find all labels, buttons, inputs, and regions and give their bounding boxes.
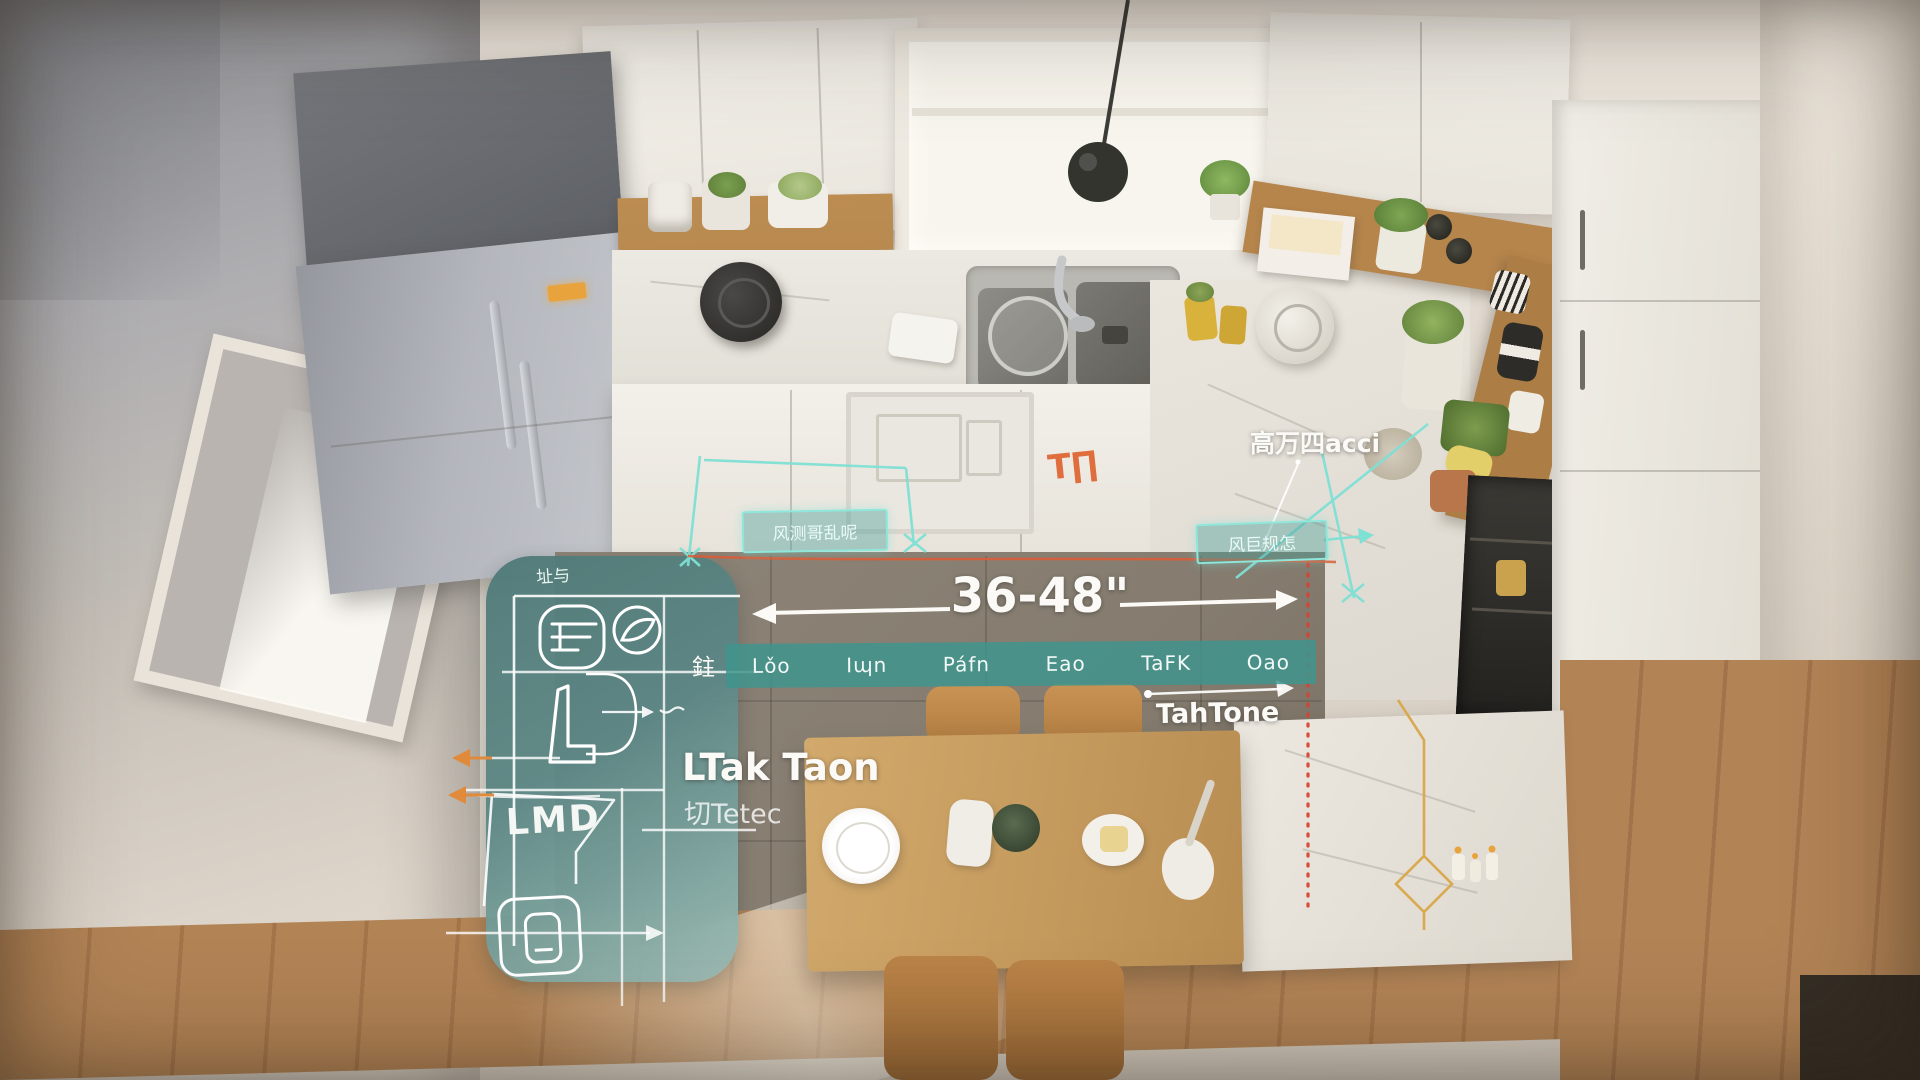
counter-mark: T∏ — [1046, 443, 1100, 488]
orange-arrowhead-1 — [452, 749, 470, 767]
outlet-icon — [498, 896, 582, 976]
lmd-label: LMD — [505, 798, 602, 844]
l-shape-icon — [550, 686, 594, 762]
panel-small-arrowhead — [642, 706, 654, 718]
callout-box-left-text: 风测哥乱呢 — [772, 518, 857, 544]
ltak-title: LTak Taon — [682, 746, 880, 789]
kitchen-render: 36-48" Lǒo Iɰn Páfn Eao TaFK Oao 鉒 风测哥乱呢… — [0, 0, 1920, 1080]
tahtone-label: TahTone — [1156, 697, 1280, 730]
dimension-bar: Lǒo Iɰn Páfn Eao TaFK Oao — [726, 640, 1316, 688]
pendant-lamp — [1068, 0, 1128, 202]
panel-tag: 址与 — [535, 561, 571, 588]
candles — [1452, 846, 1498, 883]
ltak-subtitle: 切Tetec — [684, 792, 782, 831]
leaf-icon — [614, 607, 660, 653]
measure-arrowhead-left — [752, 603, 776, 624]
bar-label: Páfn — [943, 652, 990, 676]
measure-arrowhead-right — [1276, 590, 1298, 610]
bar-label: Lǒo — [752, 654, 791, 678]
callout-box-left: 风测哥乱呢 — [742, 509, 889, 554]
faucet — [1059, 260, 1095, 332]
gold-diamond-sketch — [1396, 700, 1452, 930]
door-swing-icon — [586, 674, 636, 754]
bracket-arrowhead — [1358, 528, 1374, 544]
measurement-label: 36-48" — [940, 568, 1140, 624]
bar-label: Eao — [1046, 652, 1086, 676]
bar-label: Iɰn — [846, 653, 887, 677]
bar-prefix: 鉒 — [692, 648, 715, 682]
bar-label: Oao — [1247, 650, 1290, 674]
grid-arrow-right — [646, 925, 664, 941]
orange-arrowhead-2 — [448, 786, 466, 804]
callout-box-right-text: 风巨规怎 — [1228, 528, 1297, 555]
callout-box-right: 风巨规怎 — [1195, 520, 1328, 565]
annotation-overlay — [0, 0, 1920, 1080]
detector-label: 高万四acci — [1250, 424, 1380, 460]
container-icon — [540, 606, 604, 668]
bar-label: TaFK — [1141, 651, 1191, 675]
